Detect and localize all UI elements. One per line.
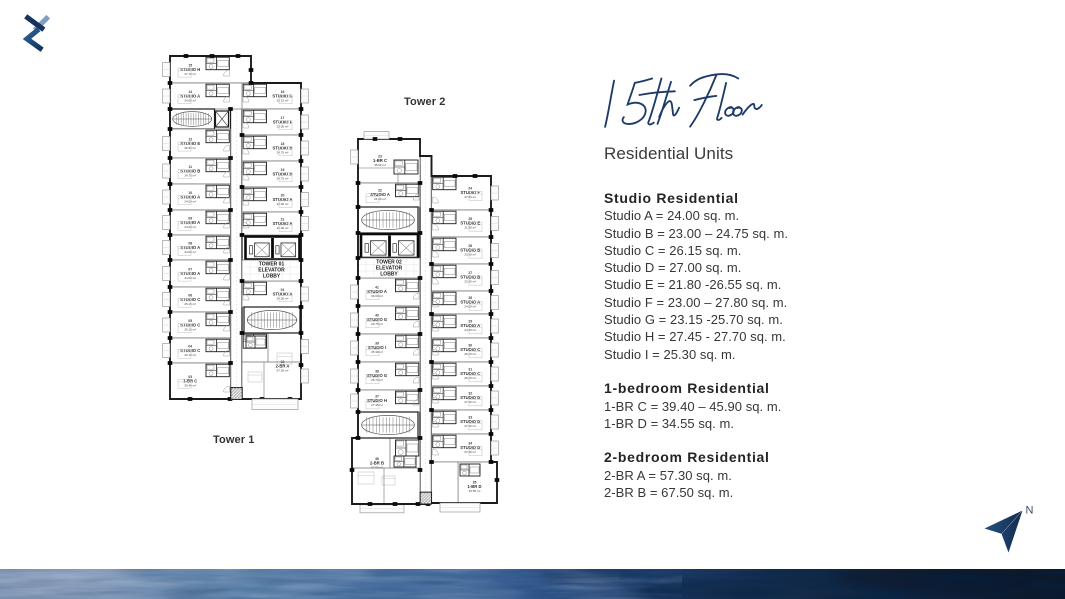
svg-text:23.00 m²: 23.00 m²	[464, 280, 476, 284]
svg-text:26.15 m²: 26.15 m²	[184, 302, 196, 306]
svg-text:24.75 m²: 24.75 m²	[277, 150, 289, 154]
svg-text:24.00 m²: 24.00 m²	[184, 225, 196, 229]
svg-text:27.70 m²: 27.70 m²	[184, 72, 196, 76]
svg-text:24.00 m²: 24.00 m²	[277, 296, 289, 300]
svg-text:39.40 m²: 39.40 m²	[184, 383, 196, 387]
svg-text:25.70 m²: 25.70 m²	[371, 378, 383, 382]
svg-text:24.00 m²: 24.00 m²	[464, 328, 476, 332]
svg-text:23.00 m²: 23.00 m²	[277, 124, 289, 128]
svg-text:LOBBY: LOBBY	[263, 274, 281, 280]
svg-text:24.00 m²: 24.00 m²	[184, 199, 196, 203]
svg-text:34.55 m²: 34.55 m²	[469, 489, 481, 493]
svg-text:57.30 m²: 57.30 m²	[277, 368, 289, 372]
svg-text:N: N	[1026, 505, 1034, 517]
svg-text:24.00 m²: 24.00 m²	[374, 197, 386, 201]
svg-text:24.75 m²: 24.75 m²	[277, 176, 289, 180]
svg-text:45.90 m²: 45.90 m²	[374, 163, 386, 167]
svg-text:26.15 m²: 26.15 m²	[464, 352, 476, 356]
svg-text:24.00 m²: 24.00 m²	[184, 250, 196, 254]
svg-text:23.00 m²: 23.00 m²	[464, 253, 476, 257]
svg-text:27.45 m²: 27.45 m²	[371, 403, 383, 407]
svg-text:27.00 m²: 27.00 m²	[464, 424, 476, 428]
svg-text:67.50 m²: 67.50 m²	[371, 466, 383, 470]
svg-text:24.00 m²: 24.00 m²	[184, 276, 196, 280]
svg-text:21.80 m²: 21.80 m²	[464, 226, 476, 230]
svg-text:26.15 m²: 26.15 m²	[184, 327, 196, 331]
svg-text:24.00 m²: 24.00 m²	[184, 98, 196, 102]
svg-text:LOBBY: LOBBY	[380, 272, 398, 278]
svg-text:25.30 m²: 25.30 m²	[371, 350, 383, 354]
svg-text:23.75 m²: 23.75 m²	[371, 322, 383, 326]
svg-text:27.80 m²: 27.80 m²	[464, 195, 476, 199]
svg-text:24.00 m²: 24.00 m²	[464, 305, 476, 309]
svg-text:27.00 m²: 27.00 m²	[464, 400, 476, 404]
svg-text:33.00 m²: 33.00 m²	[371, 294, 383, 298]
svg-text:27.00 m²: 27.00 m²	[464, 450, 476, 454]
svg-text:26.15 m²: 26.15 m²	[464, 376, 476, 380]
svg-text:24.00 m²: 24.00 m²	[277, 226, 289, 230]
svg-text:24.00 m²: 24.00 m²	[277, 202, 289, 206]
svg-text:26.55 m²: 26.55 m²	[184, 146, 196, 150]
svg-text:24.75 m²: 24.75 m²	[184, 173, 196, 177]
svg-text:26.15 m²: 26.15 m²	[184, 353, 196, 357]
svg-text:23.15 m²: 23.15 m²	[277, 98, 289, 102]
